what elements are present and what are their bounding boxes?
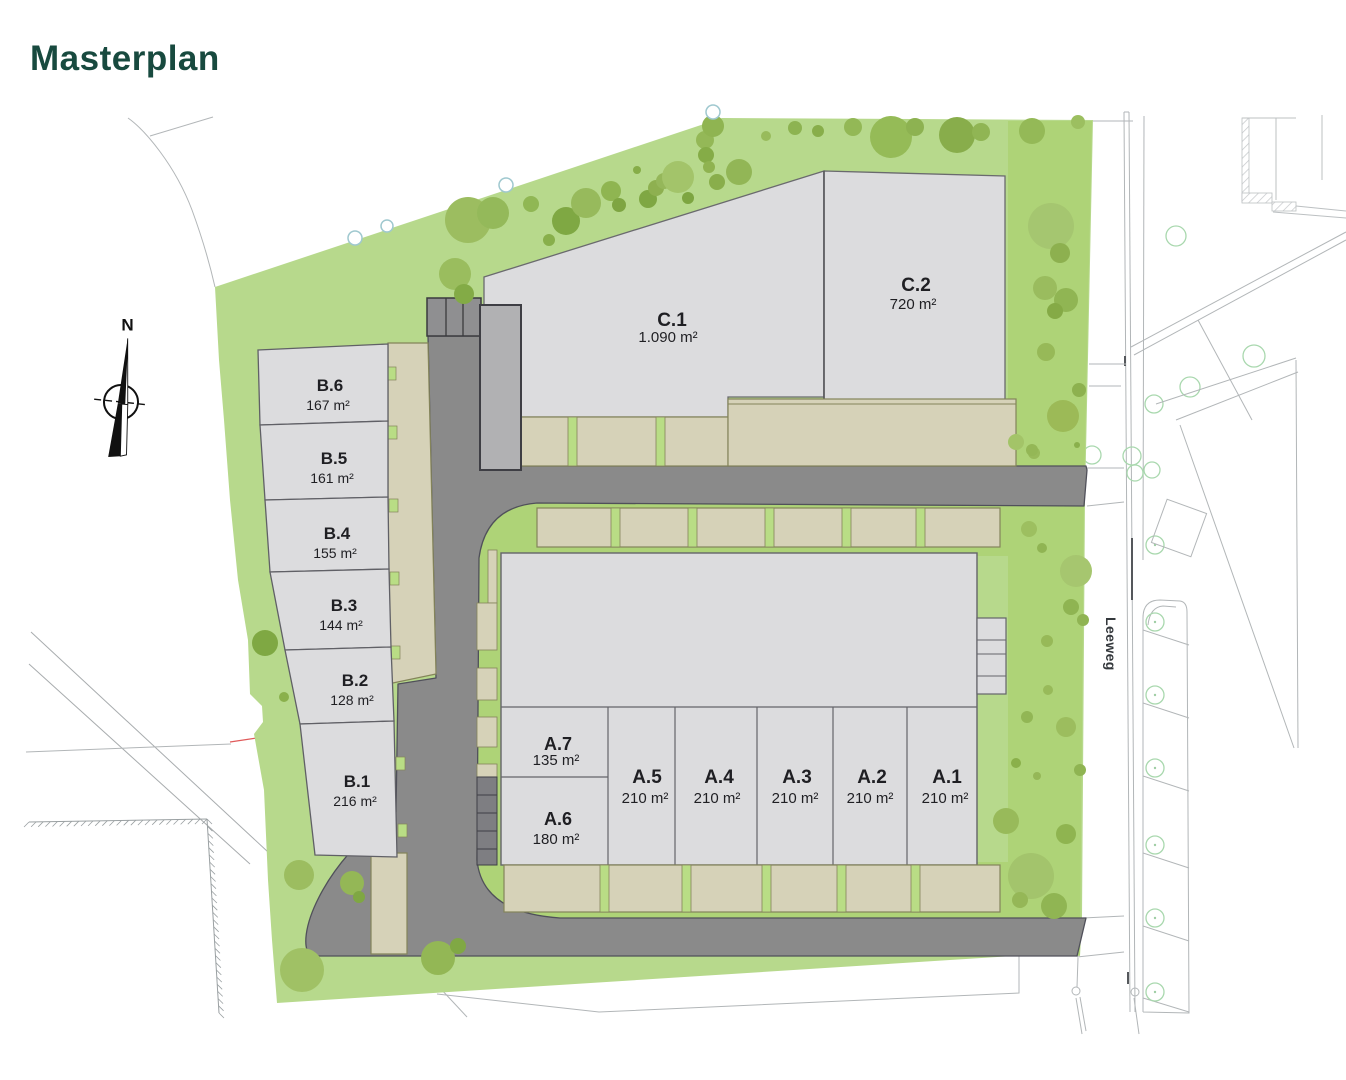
svg-text:144 m²: 144 m² <box>319 617 363 633</box>
svg-text:B.1: B.1 <box>344 772 370 791</box>
svg-text:A.4: A.4 <box>704 767 734 788</box>
svg-text:720 m²: 720 m² <box>890 296 937 313</box>
svg-text:A.6: A.6 <box>544 809 572 829</box>
svg-text:B.6: B.6 <box>317 376 343 395</box>
svg-text:Leeweg: Leeweg <box>1103 617 1119 671</box>
svg-text:180 m²: 180 m² <box>533 831 580 848</box>
svg-text:167 m²: 167 m² <box>306 397 350 413</box>
svg-text:B.2: B.2 <box>342 671 368 690</box>
svg-text:A.5: A.5 <box>632 767 662 788</box>
svg-text:210 m²: 210 m² <box>772 790 819 807</box>
svg-text:Masterplan: Masterplan <box>30 39 220 78</box>
svg-text:210 m²: 210 m² <box>694 790 741 807</box>
svg-text:A.2: A.2 <box>857 767 887 788</box>
svg-text:C.2: C.2 <box>901 275 931 296</box>
svg-text:210 m²: 210 m² <box>922 790 969 807</box>
svg-text:B.3: B.3 <box>331 596 357 615</box>
svg-text:A.3: A.3 <box>782 767 812 788</box>
svg-text:1.090 m²: 1.090 m² <box>638 329 697 346</box>
svg-text:A.1: A.1 <box>932 767 962 788</box>
svg-text:128 m²: 128 m² <box>330 692 374 708</box>
svg-text:210 m²: 210 m² <box>622 790 669 807</box>
svg-text:B.5: B.5 <box>321 449 347 468</box>
svg-text:B.4: B.4 <box>324 524 351 543</box>
svg-text:N: N <box>121 315 133 334</box>
svg-text:A.7: A.7 <box>544 734 572 754</box>
svg-text:161 m²: 161 m² <box>310 470 354 486</box>
svg-text:C.1: C.1 <box>657 310 687 331</box>
svg-text:210 m²: 210 m² <box>847 790 894 807</box>
svg-text:216 m²: 216 m² <box>333 793 377 809</box>
svg-text:135 m²: 135 m² <box>533 752 580 769</box>
svg-text:155 m²: 155 m² <box>313 545 357 561</box>
